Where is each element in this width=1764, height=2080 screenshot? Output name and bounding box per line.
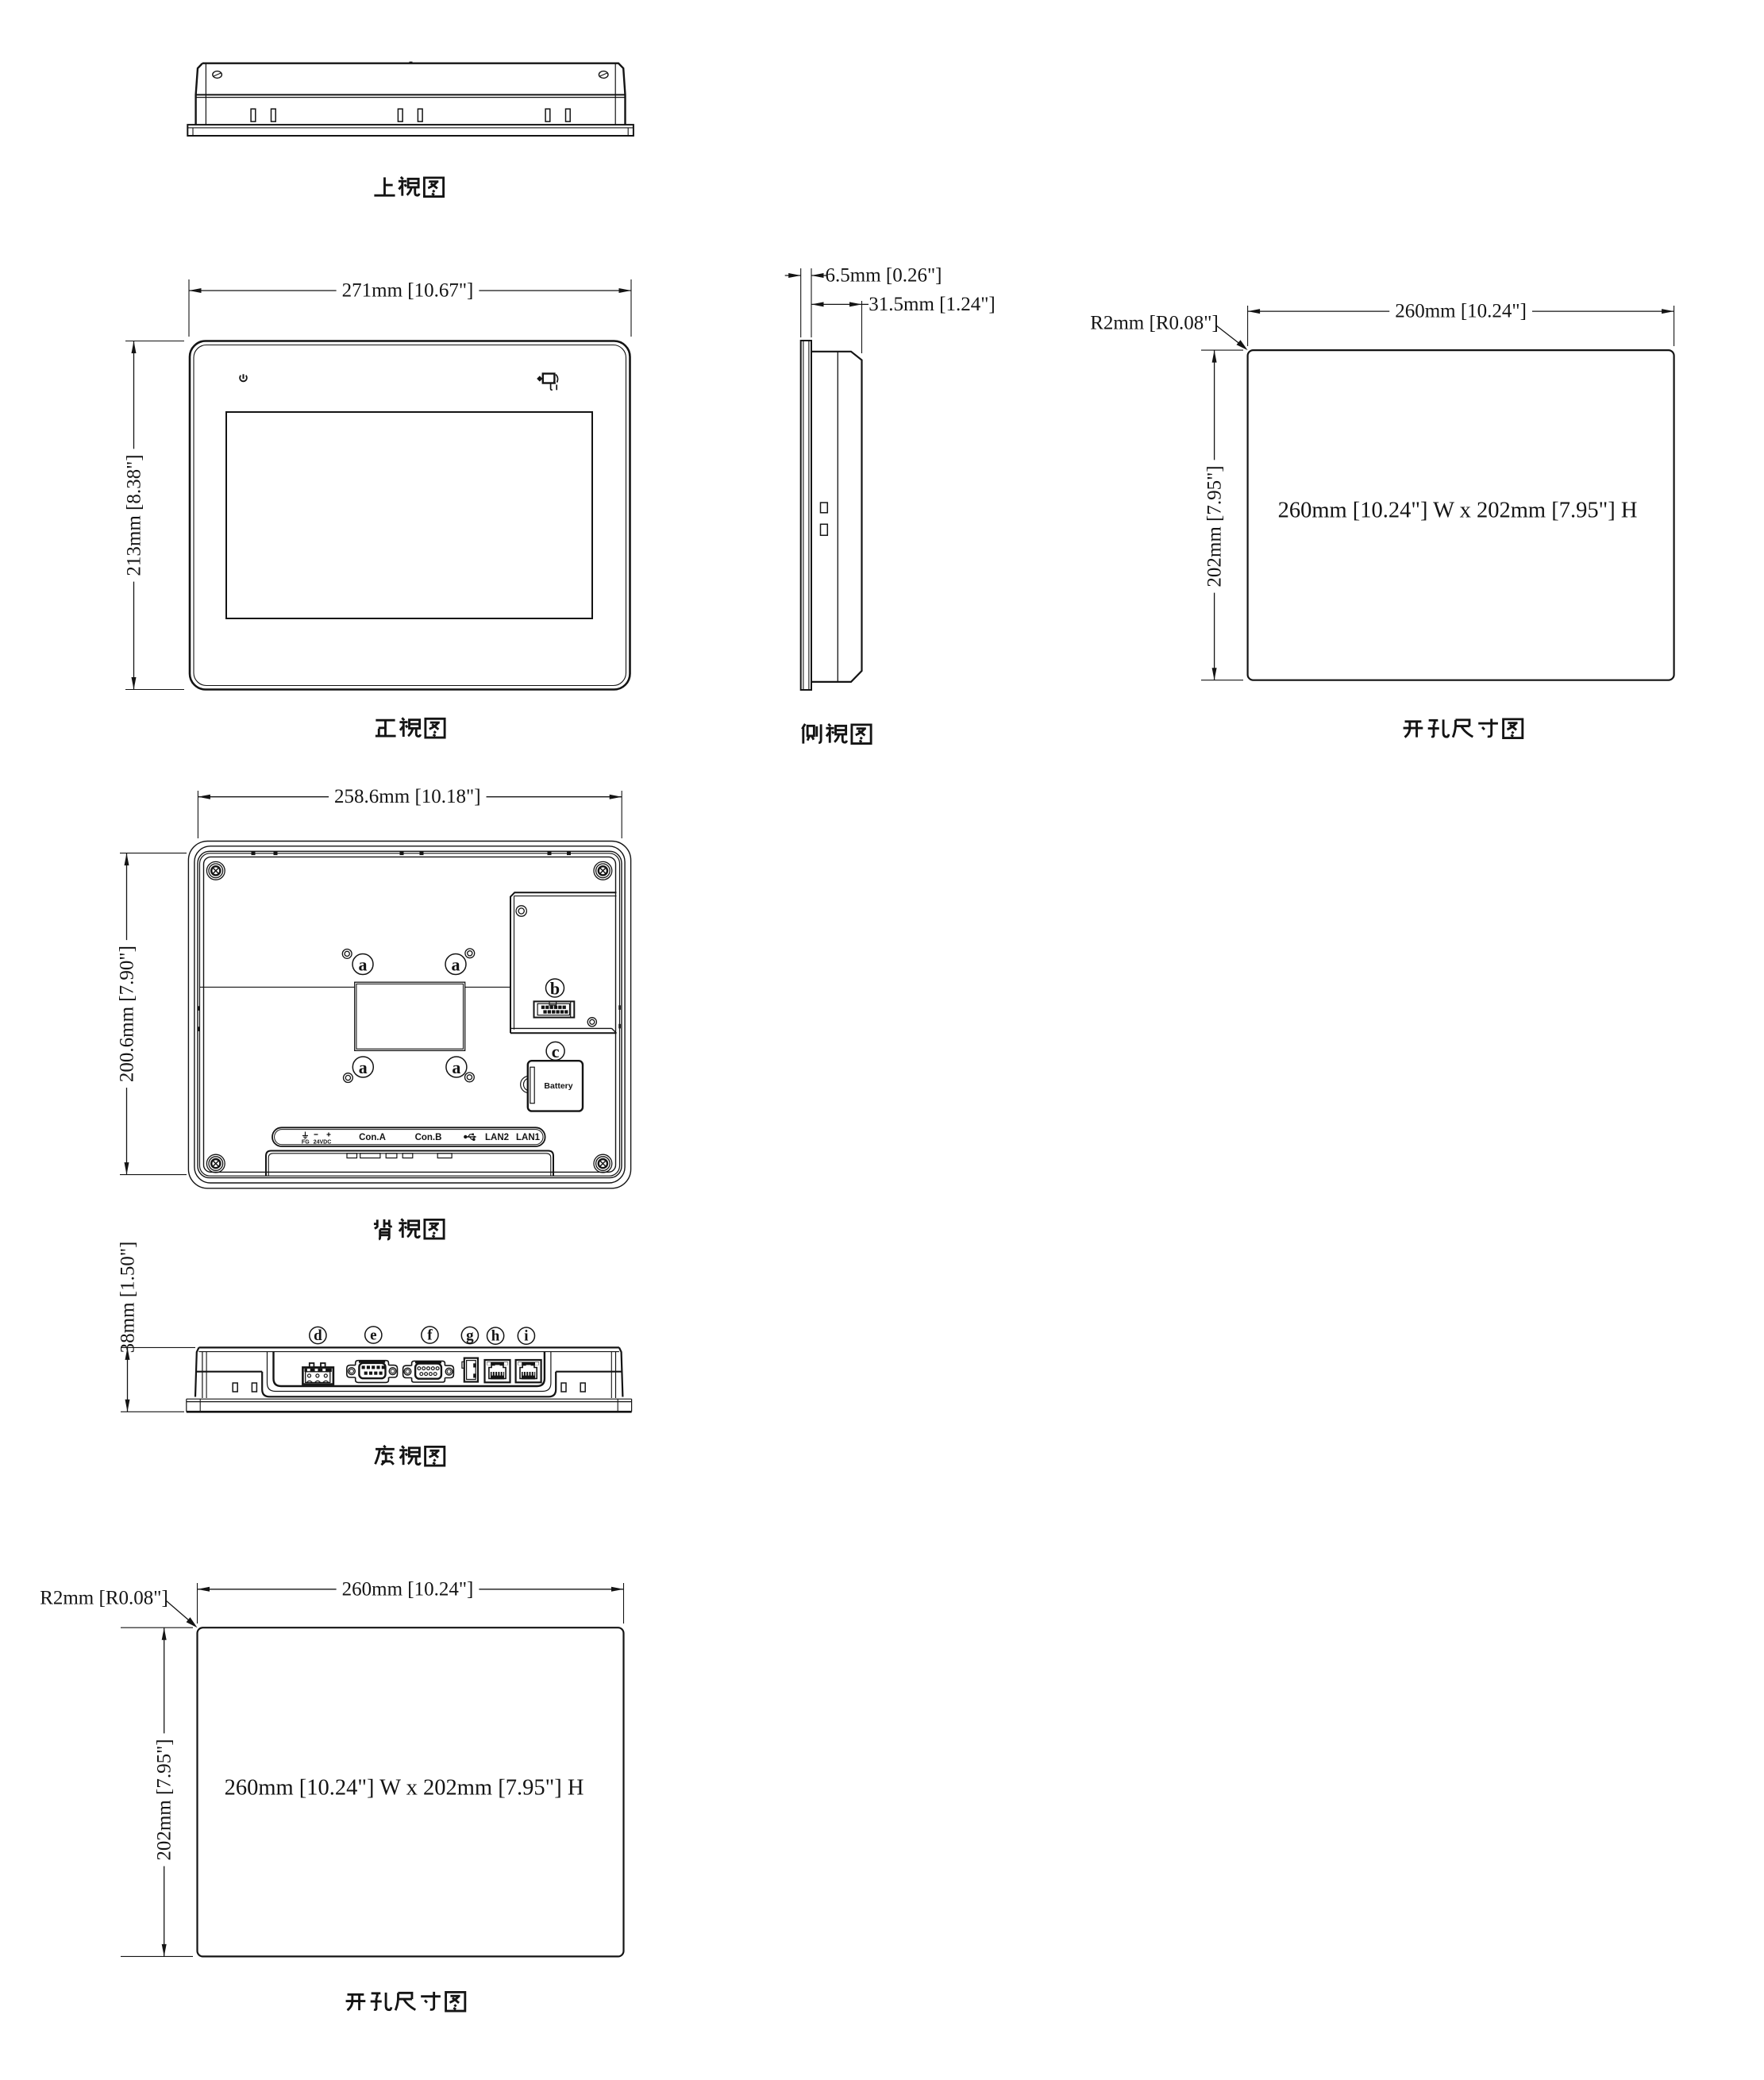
svg-text:202mm [7.95"]: 202mm [7.95"] — [154, 1739, 175, 1860]
svg-text:260mm [10.24"]: 260mm [10.24"] — [342, 1578, 474, 1600]
svg-text:260mm [10.24"]: 260mm [10.24"] — [1395, 301, 1527, 322]
svg-text:b: b — [550, 979, 560, 999]
svg-text:24VDC: 24VDC — [314, 1139, 332, 1145]
svg-text:R2mm [R0.08"]: R2mm [R0.08"] — [1090, 313, 1219, 334]
svg-text:213mm [8.38"]: 213mm [8.38"] — [124, 454, 145, 576]
svg-text:d: d — [314, 1327, 322, 1344]
svg-text:Con.B: Con.B — [415, 1133, 442, 1142]
svg-text:6.5mm [0.26"]: 6.5mm [0.26"] — [826, 265, 942, 287]
svg-text:R2mm [R0.08"]: R2mm [R0.08"] — [40, 1588, 168, 1609]
svg-text:g: g — [466, 1327, 474, 1344]
svg-text:LAN2: LAN2 — [485, 1133, 509, 1142]
svg-text:h: h — [491, 1328, 500, 1345]
svg-text:200.6mm [7.90"]: 200.6mm [7.90"] — [117, 946, 138, 1082]
svg-text:Battery: Battery — [544, 1081, 572, 1091]
svg-text:202mm [7.95"]: 202mm [7.95"] — [1204, 465, 1226, 587]
svg-text:271mm [10.67"]: 271mm [10.67"] — [342, 280, 474, 302]
svg-text:a: a — [452, 1057, 460, 1077]
svg-text:258.6mm [10.18"]: 258.6mm [10.18"] — [334, 786, 481, 807]
svg-text:FG: FG — [302, 1139, 310, 1145]
svg-text:i: i — [524, 1328, 528, 1345]
svg-text:Con.A: Con.A — [359, 1133, 386, 1142]
svg-text:a: a — [359, 955, 368, 975]
svg-text:31.5mm [1.24"]: 31.5mm [1.24"] — [869, 294, 996, 315]
svg-text:f: f — [427, 1327, 433, 1344]
svg-text:a: a — [452, 955, 460, 975]
svg-text:260mm [10.24"] W x 202mm [7.95: 260mm [10.24"] W x 202mm [7.95"] H — [225, 1776, 584, 1801]
svg-text:260mm [10.24"] W x 202mm [7.95: 260mm [10.24"] W x 202mm [7.95"] H — [1278, 499, 1638, 523]
svg-text:a: a — [359, 1057, 368, 1077]
svg-text:c: c — [552, 1042, 560, 1061]
svg-text:LAN1: LAN1 — [516, 1133, 541, 1142]
svg-text:38mm [1.50"]: 38mm [1.50"] — [117, 1242, 139, 1354]
svg-text:e: e — [370, 1327, 376, 1344]
